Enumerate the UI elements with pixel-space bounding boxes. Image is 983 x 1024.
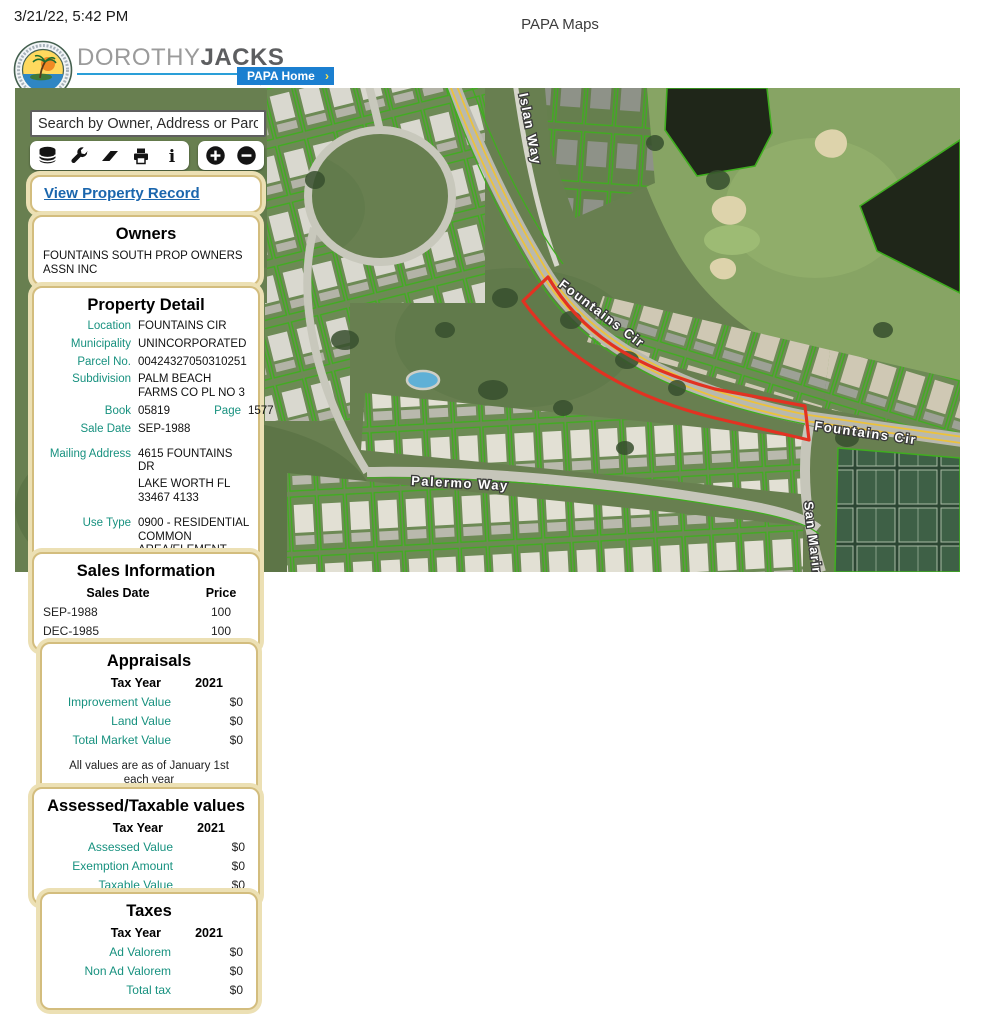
appraisals-header-row: Tax Year 2021 <box>51 676 247 690</box>
detail-row-location: Location FOUNTAINS CIR <box>43 320 249 334</box>
brand-first-name: DOROTHY <box>77 44 201 71</box>
tax-row: Total tax $0 <box>51 983 247 997</box>
tool-group-main: i <box>30 141 189 170</box>
appraisal-row: Land Value $0 <box>51 714 247 728</box>
sales-row: DEC-1985 100 <box>43 624 249 638</box>
owner-name: FOUNTAINS SOUTH PROP OWNERS ASSN INC <box>43 249 249 278</box>
view-property-record-panel: View Property Record <box>30 175 262 213</box>
assessed-taxable-panel: Assessed/Taxable values Tax Year 2021 As… <box>32 787 260 905</box>
papa-maps-page: 3/21/22, 5:42 PM PAPA Maps DOROTHYJACKS … <box>0 0 983 1024</box>
appraisals-title: Appraisals <box>51 652 247 671</box>
detail-row-parcel: Parcel No. 00424327050310251 <box>43 356 249 370</box>
sales-information-panel: Sales Information Sales Date Price SEP-1… <box>32 552 260 651</box>
pool <box>407 371 439 389</box>
sales-row: SEP-1988 100 <box>43 605 249 619</box>
document-title: PAPA Maps <box>440 16 680 33</box>
sales-header-row: Sales Date Price <box>43 586 249 600</box>
assessed-header-row: Tax Year 2021 <box>43 821 249 835</box>
tax-row: Ad Valorem $0 <box>51 945 247 959</box>
chevron-right-icon: › <box>325 70 329 82</box>
detail-row-sale-date: Sale Date SEP-1988 <box>43 423 249 437</box>
view-property-record-link[interactable]: View Property Record <box>44 185 200 202</box>
search-input[interactable] <box>30 110 266 137</box>
assessed-row: Taxable Value $0 <box>43 878 249 892</box>
detail-row-municipality: Municipality UNINCORPORATED <box>43 338 249 352</box>
tax-row: Non Ad Valorem $0 <box>51 964 247 978</box>
print-icon[interactable] <box>130 145 151 166</box>
detail-row-subdivision: Subdivision PALM BEACH FARMS CO PL NO 3 <box>43 373 249 401</box>
zoom-in-icon[interactable] <box>205 145 226 166</box>
sales-title: Sales Information <box>43 562 249 581</box>
owners-title: Owners <box>43 225 249 244</box>
detail-row-mailing: Mailing Address 4615 FOUNTAINS DR LAKE W… <box>43 448 249 506</box>
papa-home-label: PAPA Home <box>247 69 315 83</box>
appraisals-note: All values are as of January 1st each ye… <box>60 759 238 788</box>
assessed-title: Assessed/Taxable values <box>43 797 249 816</box>
detail-row-book-page: Book 05819 Page 1577 <box>43 405 249 419</box>
eraser-icon[interactable] <box>99 145 120 166</box>
info-icon[interactable]: i <box>161 145 182 166</box>
taxes-title: Taxes <box>51 902 247 921</box>
print-timestamp: 3/21/22, 5:42 PM <box>14 8 128 25</box>
layers-icon[interactable] <box>37 145 58 166</box>
owners-panel: Owners FOUNTAINS SOUTH PROP OWNERS ASSN … <box>32 215 260 286</box>
zoom-out-icon[interactable] <box>236 145 257 166</box>
tools-wrench-icon[interactable] <box>68 145 89 166</box>
taxes-header-row: Tax Year 2021 <box>51 926 247 940</box>
property-detail-title: Property Detail <box>43 296 249 315</box>
papa-home-button[interactable]: PAPA Home › <box>237 67 334 85</box>
taxes-panel: Taxes Tax Year 2021 Ad Valorem $0 Non Ad… <box>40 892 258 1010</box>
tennis-courts <box>835 448 960 572</box>
appraisal-row: Total Market Value $0 <box>51 733 247 747</box>
appraisals-panel: Appraisals Tax Year 2021 Improvement Val… <box>40 642 258 800</box>
assessed-row: Exemption Amount $0 <box>43 859 249 873</box>
appraisal-row: Improvement Value $0 <box>51 695 247 709</box>
map-toolbar: i <box>30 141 264 170</box>
tool-group-zoom <box>198 141 264 170</box>
svg-text:i: i <box>168 147 175 166</box>
assessed-row: Assessed Value $0 <box>43 840 249 854</box>
